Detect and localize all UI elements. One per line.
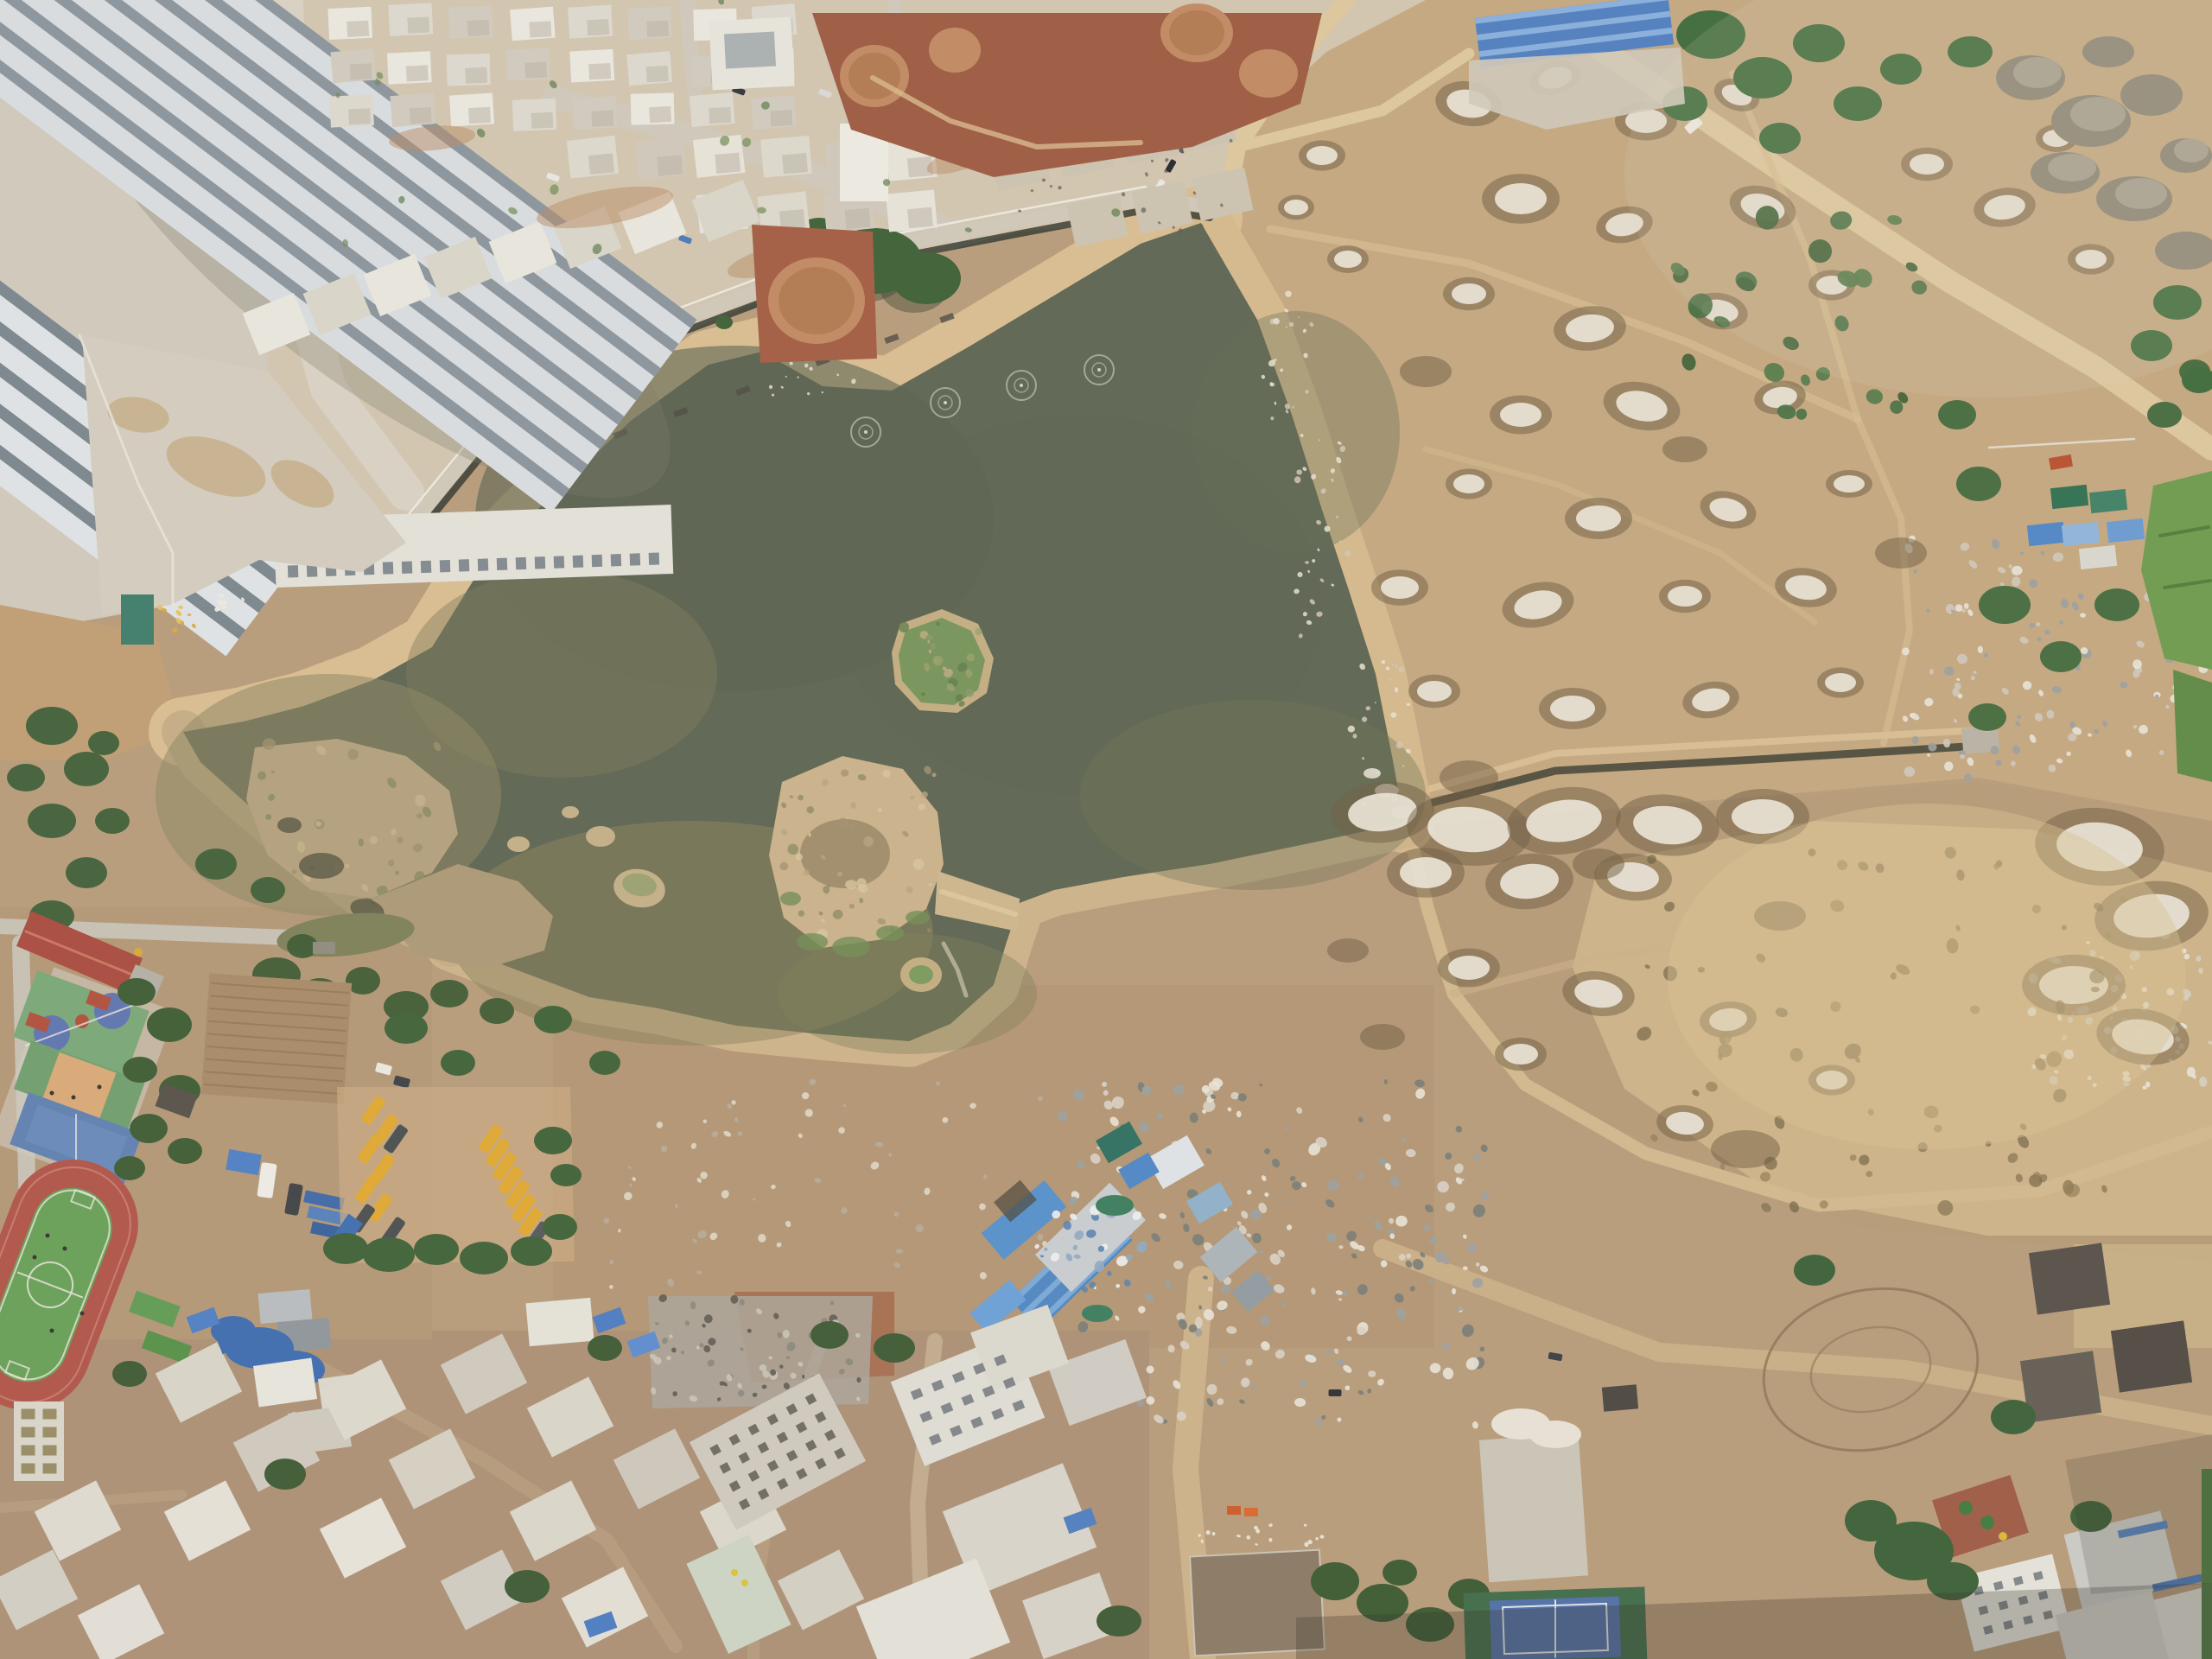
aerial-photo-stage (0, 0, 2212, 1659)
aerial-drone-photo (0, 0, 2212, 1659)
